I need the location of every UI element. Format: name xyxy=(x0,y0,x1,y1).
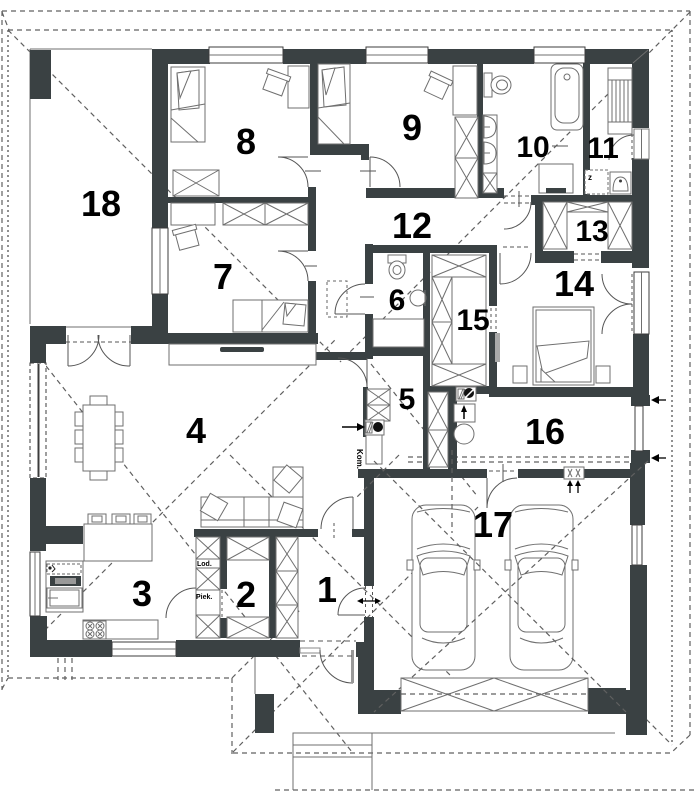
svg-text:Kom.: Kom. xyxy=(355,449,364,469)
svg-text:14: 14 xyxy=(554,263,594,304)
svg-text:6: 6 xyxy=(389,284,406,317)
svg-text:12: 12 xyxy=(392,205,432,246)
svg-text:18: 18 xyxy=(81,183,121,224)
svg-text:Lod.: Lod. xyxy=(197,561,212,568)
svg-text:z: z xyxy=(588,173,592,182)
svg-text:Piek.: Piek. xyxy=(196,594,212,601)
svg-text:8: 8 xyxy=(236,121,256,162)
svg-text:5: 5 xyxy=(399,383,416,416)
svg-text:13: 13 xyxy=(575,215,608,248)
svg-text:15: 15 xyxy=(456,304,489,337)
svg-text:3: 3 xyxy=(132,573,152,614)
svg-text:11: 11 xyxy=(587,132,619,165)
svg-text:10: 10 xyxy=(516,131,549,164)
svg-text:9: 9 xyxy=(402,107,422,148)
svg-text:16: 16 xyxy=(525,411,565,452)
svg-text:17: 17 xyxy=(473,504,513,545)
svg-text:4: 4 xyxy=(186,410,206,451)
svg-text:2: 2 xyxy=(236,574,256,615)
svg-text:1: 1 xyxy=(317,569,337,610)
svg-text:7: 7 xyxy=(213,256,233,297)
